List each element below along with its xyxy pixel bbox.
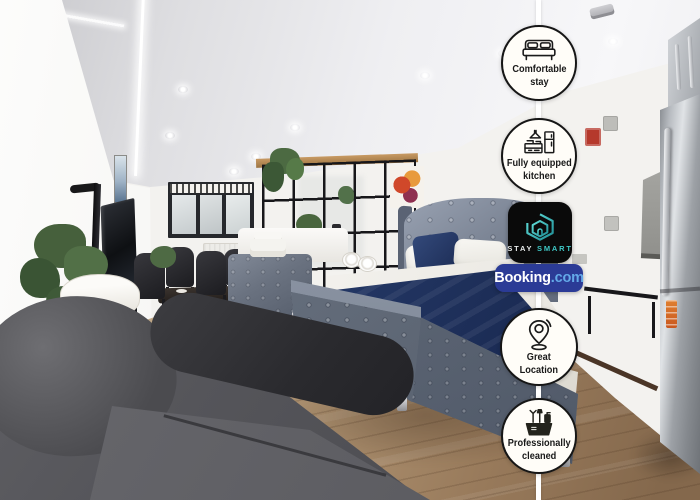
- badge-fully-equipped-kitchen: Fully equipped kitchen: [501, 118, 577, 194]
- badge-label-line: Great: [520, 352, 558, 364]
- bed-icon: [520, 37, 558, 63]
- booking-suffix-text: .com: [551, 270, 584, 286]
- badge-label-line: cleaned: [508, 451, 571, 463]
- badge-overlay-column: Comfortable stay Fully equipped kitchen: [0, 0, 700, 500]
- badge-professionally-cleaned: Professionally cleaned: [501, 398, 577, 474]
- badge-label-line: kitchen: [507, 171, 572, 183]
- staysmart-word-stay: STAY: [507, 244, 533, 253]
- badge-label-line: Professionally: [508, 438, 571, 450]
- cleaning-basket-icon: [521, 409, 557, 437]
- badge-label-line: Comfortable: [512, 64, 566, 76]
- location-pin-icon: [523, 317, 555, 351]
- badge-label-line: Location: [520, 365, 558, 377]
- listing-photo-stage: Comfortable stay Fully equipped kitchen: [0, 0, 700, 500]
- badge-label-line: stay: [512, 77, 566, 89]
- staysmart-word-smart: SMART: [537, 244, 573, 253]
- kitchen-icon: [521, 129, 557, 157]
- booking-brand-text: Booking: [494, 270, 551, 286]
- staysmart-logo-icon: [524, 212, 556, 242]
- badge-comfortable-stay: Comfortable stay: [501, 25, 577, 101]
- badge-great-location: Great Location: [500, 308, 578, 386]
- staysmart-wordmark: STAY SMART: [507, 244, 572, 253]
- staysmart-logo-badge: STAY SMART: [508, 202, 572, 263]
- badge-label-line: Fully equipped: [507, 158, 572, 170]
- booking-logo-badge: Booking.com: [495, 264, 583, 292]
